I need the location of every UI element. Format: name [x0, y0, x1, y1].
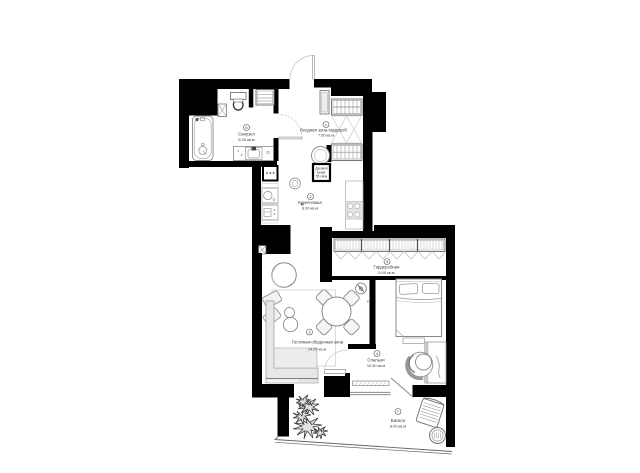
- svg-text:6.00 кв.м: 6.00 кв.м: [238, 137, 255, 142]
- svg-text:Гостиная-обеденная зона: Гостиная-обеденная зона: [292, 340, 344, 345]
- svg-text:55 см/м: 55 см/м: [316, 175, 327, 179]
- svg-text:Кухня-ниша: Кухня-ниша: [298, 200, 322, 205]
- svg-text:10.50 кв.м: 10.50 кв.м: [367, 363, 386, 368]
- svg-text:8.30 кв.м: 8.30 кв.м: [302, 206, 319, 211]
- svg-text:8.00 кв.м: 8.00 кв.м: [390, 424, 407, 429]
- svg-text:Санузел: Санузел: [238, 131, 255, 136]
- svg-text:7.50 кв.м: 7.50 кв.м: [318, 132, 335, 137]
- svg-text:Балкон: Балкон: [391, 418, 406, 423]
- svg-text:Спальня: Спальня: [367, 358, 385, 363]
- svg-text:14.20 кв.м: 14.20 кв.м: [308, 347, 327, 352]
- svg-text:Гардеробная: Гардеробная: [374, 265, 401, 270]
- svg-text:5.00 кв.м: 5.00 кв.м: [378, 270, 395, 275]
